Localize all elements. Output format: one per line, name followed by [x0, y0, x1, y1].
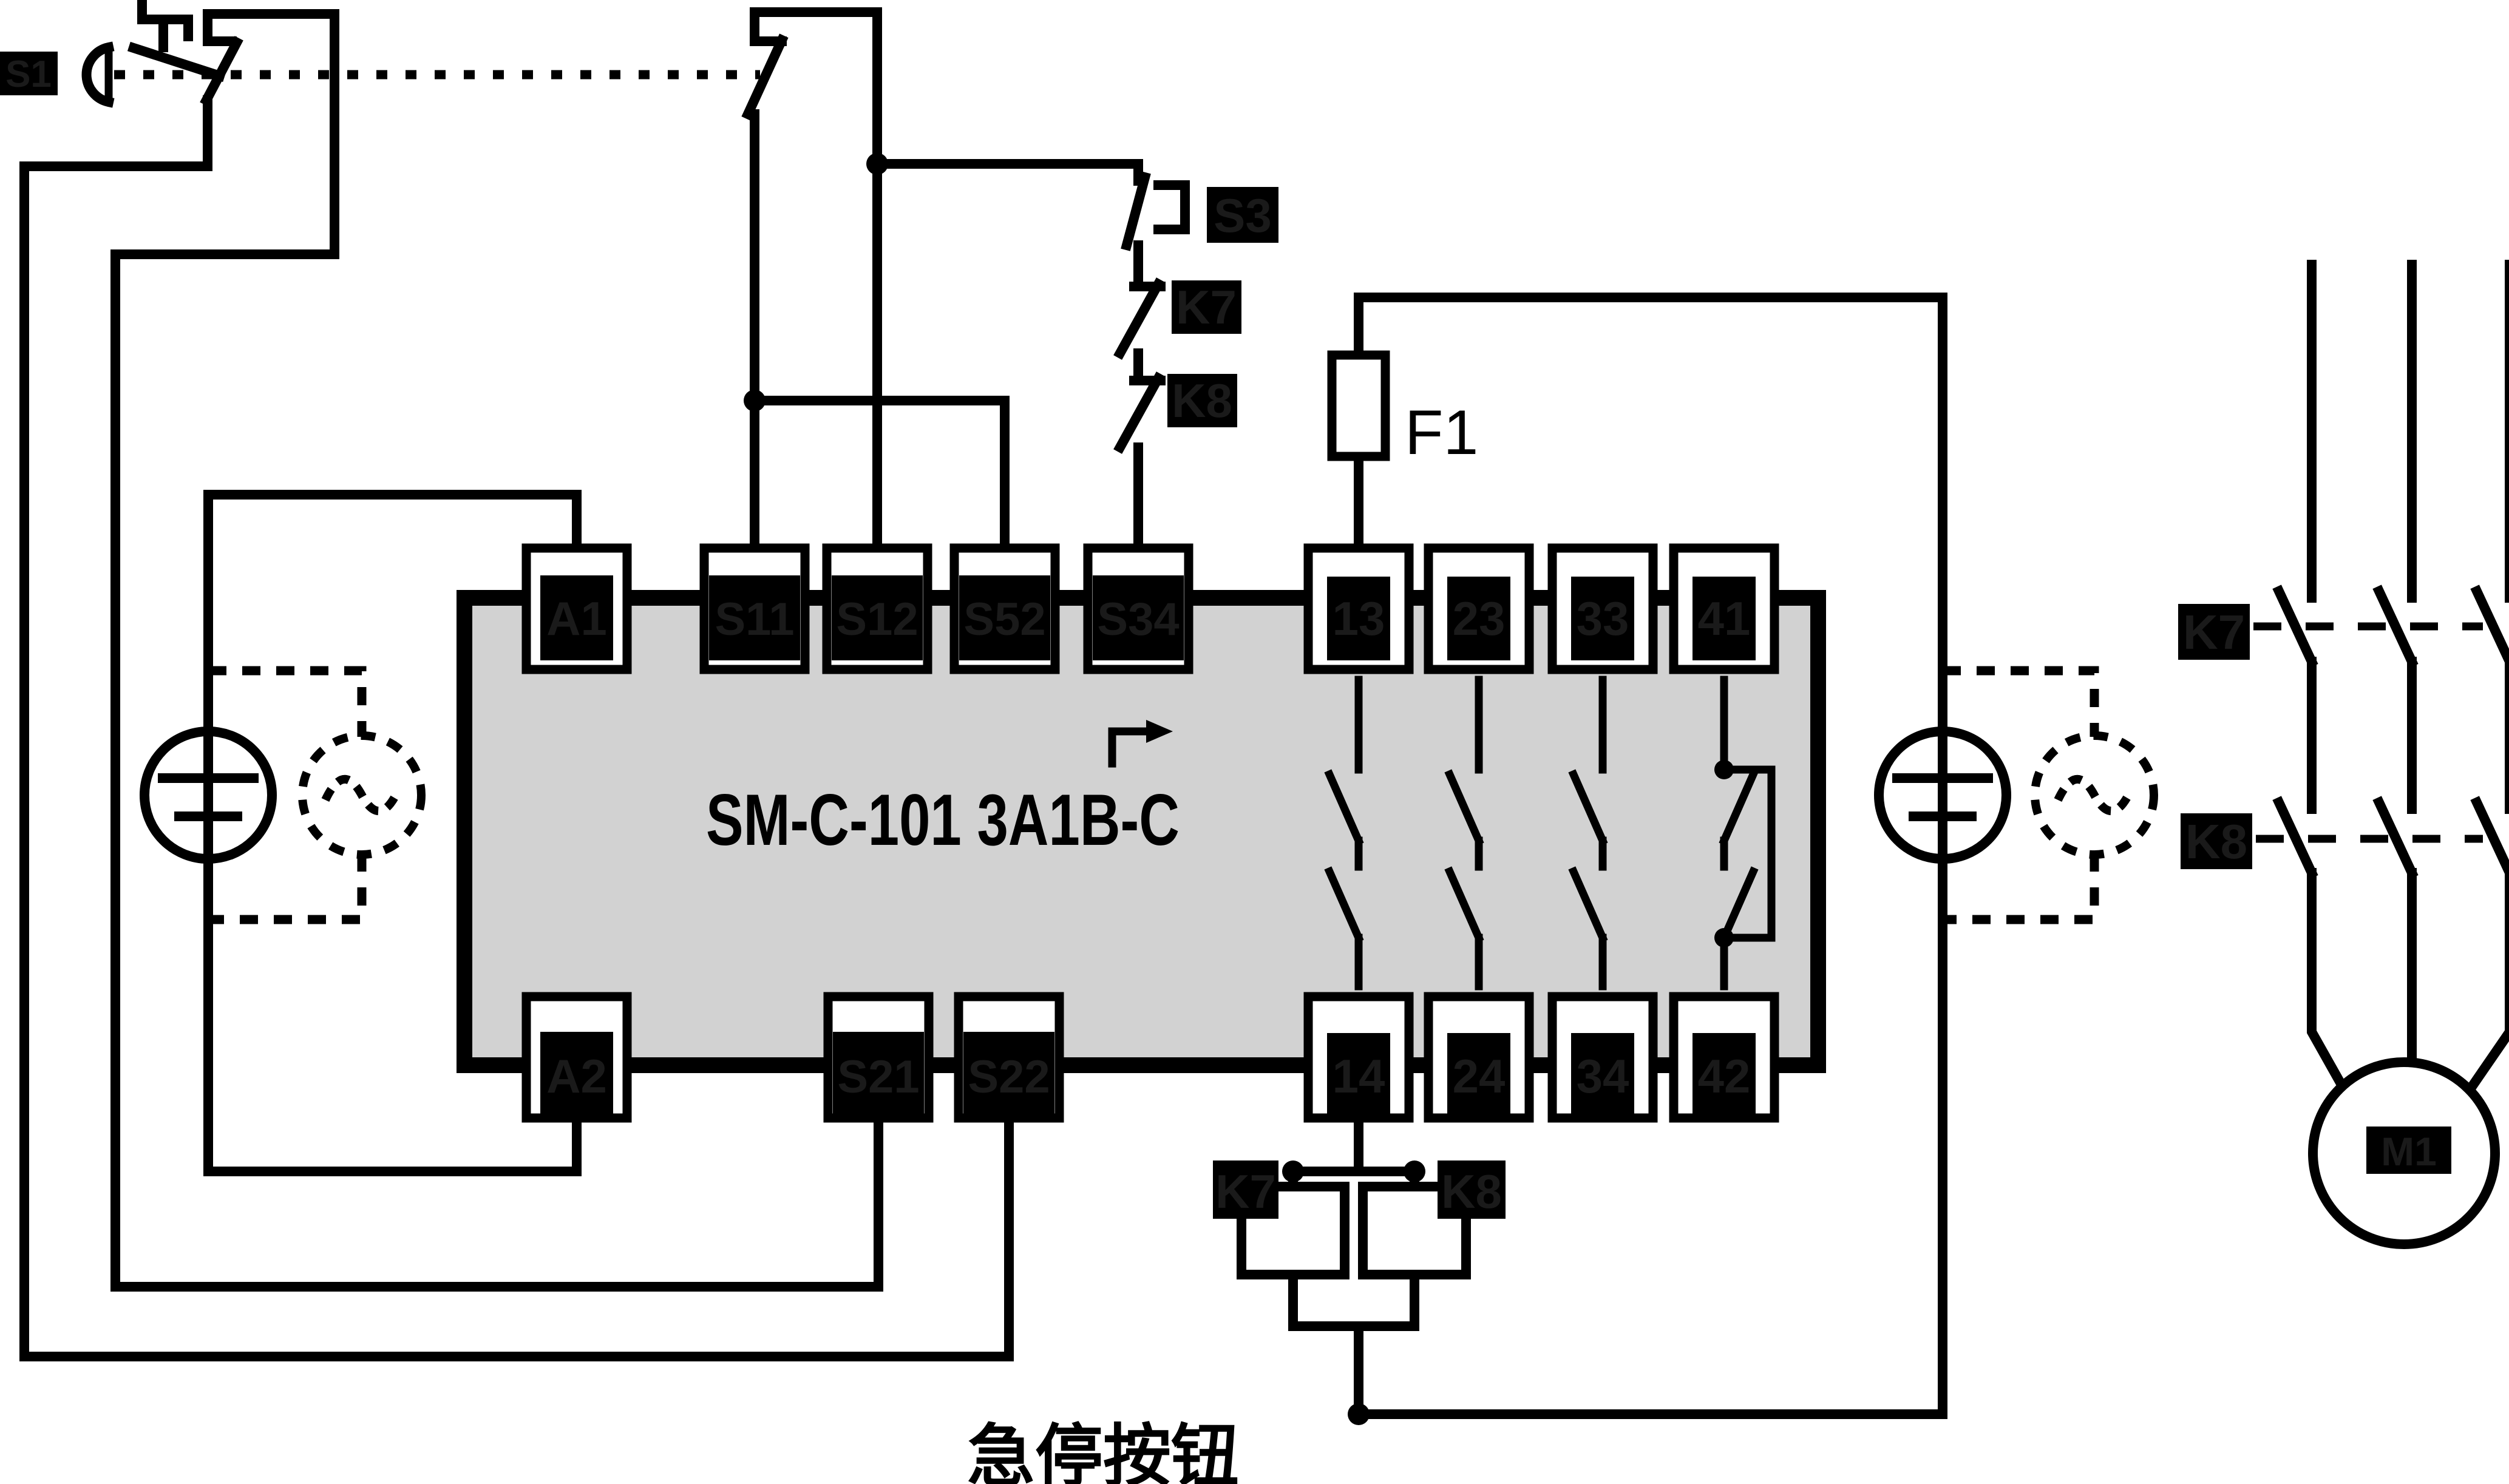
junction-dot: [744, 390, 766, 412]
phase-3-wire: [2470, 265, 2509, 1090]
circuit-diagram: SM-C-101 3A1B-C S1 S3 K7 K8: [0, 0, 2509, 1484]
terminal-a1: A1: [526, 548, 627, 669]
ac-sine-icon: [325, 779, 398, 811]
k7-nc-label: K7: [1176, 280, 1237, 334]
terminal-label: 24: [1453, 1049, 1506, 1103]
junction-dot: [1282, 1160, 1304, 1182]
terminal-label: A2: [546, 1049, 607, 1103]
junction-dot: [1714, 928, 1734, 947]
terminal-label: 33: [1577, 592, 1629, 645]
terminal-label: S11: [715, 594, 794, 645]
terminal-s21: S21: [828, 997, 929, 1120]
terminal-label: 13: [1333, 592, 1385, 645]
terminal-s12: S12: [827, 548, 928, 669]
ac-branch-bottom: [208, 853, 362, 920]
terminal-label: S34: [1097, 594, 1179, 645]
terminal-s52: S52: [954, 548, 1055, 669]
ac-sine-icon: [2058, 779, 2131, 811]
terminal-label: S21: [837, 1051, 919, 1103]
fuse-label: F1: [1405, 398, 1478, 468]
fuse-icon: [1332, 355, 1385, 456]
terminal-label: 42: [1698, 1049, 1751, 1103]
coil-k8-label: K8: [1441, 1165, 1502, 1218]
ac-branch-bottom: [1943, 853, 2094, 920]
estop-channel2-contact: [748, 12, 877, 548]
junction-dot: [1348, 1403, 1370, 1425]
caption-emergency-stop: 急停按钮: [967, 1418, 1239, 1484]
terminal-label: S52: [963, 594, 1045, 645]
terminal-41: 41: [1674, 548, 1774, 669]
estop-channel2-circuit: [744, 12, 1005, 548]
terminal-s34: S34: [1088, 548, 1189, 669]
contactor-k7-label: K7: [2183, 605, 2245, 659]
terminal-13: 13: [1308, 548, 1409, 669]
coil-k7-label: K7: [1215, 1165, 1276, 1218]
motor-label: M1: [2381, 1129, 2437, 1174]
terminal-a2: A2: [526, 997, 627, 1120]
junction-dot: [1714, 760, 1734, 779]
terminal-label: S22: [968, 1051, 1050, 1103]
module-model-label: SM-C-101 3A1B-C: [706, 779, 1180, 861]
ac-branch-top: [1943, 671, 2094, 737]
terminal-42: 42: [1674, 997, 1774, 1118]
terminal-label: 14: [1333, 1049, 1385, 1103]
terminal-label: S12: [836, 594, 918, 645]
terminal-s22: S22: [959, 997, 1059, 1120]
terminal-label: 41: [1698, 592, 1751, 645]
chain-wiring: [877, 164, 1185, 548]
terminal-24: 24: [1428, 997, 1529, 1118]
terminal-s11: S11: [704, 548, 805, 669]
terminal-34: 34: [1552, 997, 1653, 1118]
terminal-label: A1: [546, 592, 607, 645]
motor-power-circuit: K7 K8 M1: [2178, 265, 2509, 1244]
phase-2-wire: [2379, 265, 2412, 1064]
contactor-k8-label: K8: [2185, 815, 2247, 869]
terminal-label: 34: [1577, 1049, 1629, 1103]
terminal-23: 23: [1428, 548, 1529, 669]
schematic-page: SM-C-101 3A1B-C S1 S3 K7 K8: [0, 0, 2509, 1484]
start-button-label: S3: [1214, 189, 1271, 242]
junction-dot: [1404, 1160, 1425, 1182]
phase-1-wire: [2279, 265, 2344, 1090]
terminal-33: 33: [1552, 548, 1653, 669]
estop-label: S1: [5, 53, 52, 95]
start-feedback-chain: S3 K7 K8: [877, 164, 1278, 548]
terminal-14: 14: [1308, 997, 1409, 1118]
ac-branch-top: [208, 671, 362, 737]
k8-nc-label: K8: [1172, 374, 1232, 427]
terminal-label: 23: [1453, 592, 1506, 645]
